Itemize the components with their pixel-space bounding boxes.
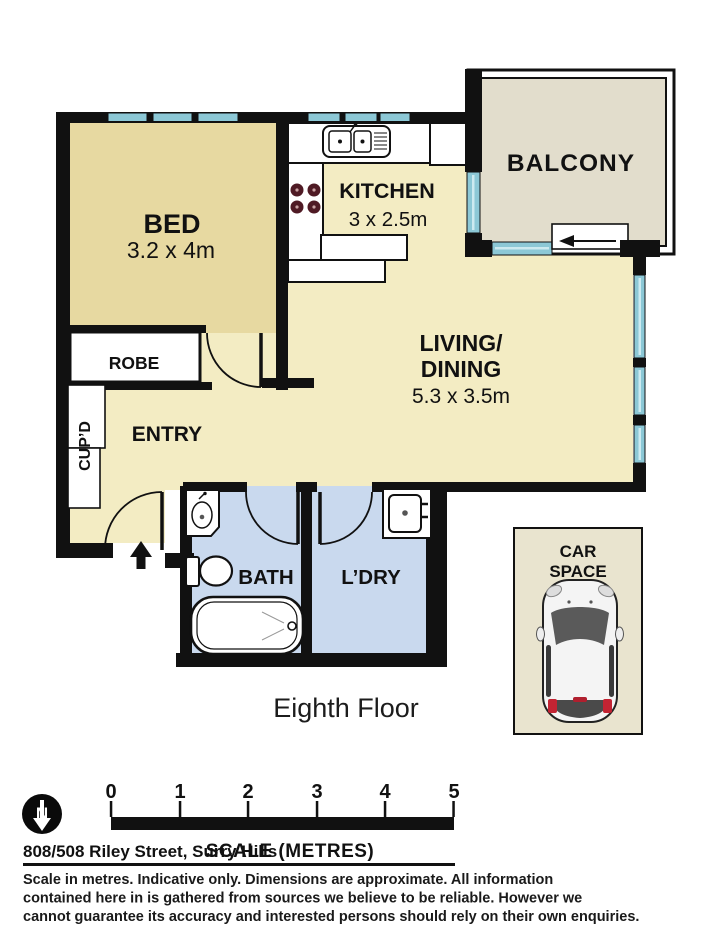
- scale-tick-label: 0: [105, 781, 116, 803]
- scale-tick-label: 2: [242, 781, 253, 803]
- window-segment: [198, 113, 238, 122]
- floorplan-svg: CAR SPACE BED 3.2 x 4m KITCHEN 3 x 2.5m …: [0, 0, 722, 934]
- window-segment: [345, 113, 377, 122]
- north-label: N: [36, 804, 48, 823]
- scale-tick: [316, 801, 319, 817]
- scale-tick: [384, 801, 387, 817]
- robe-label: ROBE: [109, 353, 160, 373]
- floor-label: Eighth Floor: [273, 693, 419, 723]
- living-dims: 5.3 x 3.5m: [412, 385, 510, 408]
- kitchen-label: KITCHEN: [339, 179, 435, 203]
- footer-divider: [23, 863, 455, 866]
- car-space: CAR SPACE: [514, 528, 642, 734]
- window-segment: [308, 113, 340, 122]
- wall-segment: [465, 240, 492, 257]
- scale-tick: [110, 801, 113, 817]
- scale-tick-label: 3: [311, 781, 322, 803]
- wall-segment: [620, 240, 646, 257]
- scale-tick: [452, 801, 455, 817]
- window-glass-line: [639, 278, 642, 355]
- window-segment: [380, 113, 410, 122]
- kitchen-bench-right: [430, 123, 467, 165]
- living-label-line1: LIVING/: [419, 330, 503, 356]
- entry-arrow-icon: [130, 541, 152, 569]
- scale-tick: [247, 801, 250, 817]
- wall-segment: [633, 463, 646, 492]
- disclaimer-line1: Scale in metres. Indicative only. Dimens…: [23, 872, 553, 888]
- window-segment: [153, 113, 192, 122]
- scale-tick-label: 1: [174, 781, 185, 803]
- basin-icon: [186, 490, 219, 536]
- floorplan-page: CAR SPACE BED 3.2 x 4m KITCHEN 3 x 2.5m …: [0, 0, 722, 934]
- wall-segment: [276, 112, 288, 390]
- wall-segment: [262, 378, 314, 388]
- window-glass-line: [639, 428, 642, 460]
- scale-tick-label: 4: [379, 781, 391, 803]
- wall-segment: [633, 358, 646, 367]
- scale-metres-label: SCALE (METRES): [206, 841, 375, 862]
- north-arrow-icon: N: [22, 794, 62, 834]
- scale-tick: [179, 801, 182, 817]
- sink-icon: [323, 123, 390, 157]
- bed-dims: 3.2 x 4m: [127, 237, 215, 263]
- bathtub-icon: [191, 597, 303, 654]
- disclaimer-line2: contained here in is gathered from sourc…: [23, 891, 582, 907]
- kitchen-dims: 3 x 2.5m: [349, 208, 428, 231]
- entry-label: ENTRY: [132, 423, 202, 446]
- disclaimer-line3: cannot guarantee its accuracy and intere…: [23, 909, 639, 925]
- cupboard-label: CUP’D: [77, 421, 94, 471]
- laundry-label: L’DRY: [341, 566, 401, 589]
- window-glass-line: [639, 370, 642, 412]
- bath-label: BATH: [238, 566, 293, 589]
- car-space-label-line2: SPACE: [549, 562, 606, 581]
- kitchen-bench-step-upper: [321, 235, 407, 260]
- kitchen-bench-step-lower: [288, 260, 385, 282]
- toilet-icon: [186, 557, 232, 587]
- wall-segment: [633, 415, 646, 425]
- window-segment: [108, 113, 147, 122]
- scale-tick-label: 5: [448, 781, 459, 803]
- car-space-label-line1: CAR: [560, 542, 597, 561]
- scale-bar: 0 1 2 3 4 5 N: [22, 781, 460, 834]
- laundry-tub-icon: [383, 489, 431, 538]
- window-glass-line: [472, 175, 475, 230]
- sliding-door: [552, 224, 628, 249]
- balcony-label: BALCONY: [507, 150, 635, 177]
- bed-label: BED: [143, 209, 200, 239]
- living-label-line2: DINING: [421, 356, 502, 382]
- scale-bar-rule: [111, 817, 454, 830]
- car-icon: [537, 580, 624, 722]
- window-glass-line: [495, 247, 549, 250]
- footer: 808/508 Riley Street, Surry Hills SCALE …: [23, 841, 639, 925]
